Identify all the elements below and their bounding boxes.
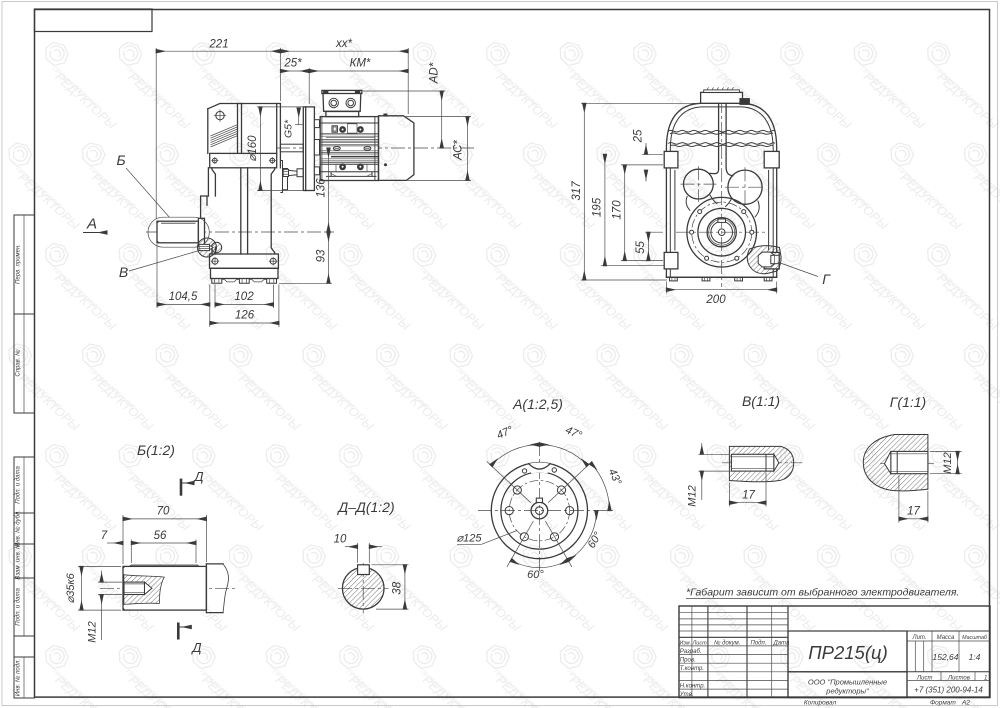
svg-text:Листов: Листов (947, 675, 970, 681)
svg-text:АС*: АС* (453, 140, 465, 161)
svg-text:Масштаб: Масштаб (962, 635, 988, 641)
svg-text:Инв. № дубл.: Инв. № дубл. (15, 510, 22, 547)
svg-text:А(1:2,5): А(1:2,5) (512, 396, 563, 412)
svg-text:Б(1:2): Б(1:2) (137, 442, 175, 458)
svg-text:Инв. № подл.: Инв. № подл. (15, 659, 22, 696)
svg-text:ПР215(ц): ПР215(ц) (808, 642, 888, 663)
svg-text:Изм.: Изм. (680, 640, 692, 646)
svg-text:Подп. и дата: Подп. и дата (16, 588, 22, 626)
svg-text:⌀160: ⌀160 (247, 135, 259, 162)
svg-text:56: 56 (154, 530, 167, 542)
svg-text:Лист: Лист (692, 640, 708, 646)
svg-text:Т.контр.: Т.контр. (680, 666, 704, 672)
svg-text:Формат: Формат (930, 700, 956, 707)
svg-text:317: 317 (571, 181, 583, 201)
svg-text:170: 170 (612, 200, 624, 220)
svg-text:25*: 25* (283, 58, 302, 70)
svg-text:⌀125: ⌀125 (457, 533, 483, 545)
svg-text:10: 10 (334, 534, 347, 546)
svg-text:G5*: G5* (283, 119, 295, 138)
svg-text:⌀35к6: ⌀35к6 (65, 572, 77, 603)
svg-text:М12: М12 (942, 452, 954, 473)
svg-text:7: 7 (101, 530, 108, 542)
svg-text:93: 93 (316, 249, 328, 262)
svg-text:Справ. №: Справ. № (15, 349, 22, 377)
svg-text:КМ*: КМ* (350, 58, 371, 70)
svg-text:М12: М12 (87, 621, 99, 642)
svg-text:Взам. инв. №: Взам. инв. № (15, 542, 22, 580)
svg-text:В(1:1): В(1:1) (742, 393, 780, 409)
svg-text:Б: Б (116, 152, 125, 168)
svg-text:102: 102 (234, 291, 254, 303)
svg-text:Утв.: Утв. (679, 692, 694, 698)
svg-text:38: 38 (392, 581, 404, 594)
svg-text:+7 (351) 200-94-14: +7 (351) 200-94-14 (914, 686, 983, 695)
svg-text:200: 200 (705, 294, 726, 306)
svg-text:17: 17 (907, 506, 920, 518)
svg-text:152,64: 152,64 (933, 652, 959, 662)
svg-text:Масса: Масса (937, 635, 955, 641)
svg-text:Г(1:1): Г(1:1) (890, 394, 926, 410)
svg-text:А: А (86, 216, 97, 233)
svg-text:126: 126 (235, 310, 255, 322)
svg-text:Пров.: Пров. (680, 657, 696, 663)
svg-text:Перв. примен.: Перв. примен. (16, 244, 22, 284)
svg-text:Копировал: Копировал (804, 700, 837, 707)
svg-text:Подп. и дата: Подп. и дата (16, 466, 22, 504)
svg-text:Лист: Лист (916, 675, 932, 681)
svg-text:25: 25 (633, 129, 645, 143)
svg-text:60°: 60° (527, 569, 544, 581)
svg-text:Н.контр.: Н.контр. (680, 683, 705, 689)
svg-text:Дата: Дата (773, 640, 790, 646)
svg-text:Подп.: Подп. (751, 640, 767, 646)
svg-text:136: 136 (316, 178, 328, 198)
svg-text:Д: Д (192, 469, 203, 484)
svg-text:А2: А2 (961, 700, 970, 707)
svg-text:221: 221 (208, 39, 228, 51)
svg-text:ООО "Промышленные: ООО "Промышленные (808, 678, 887, 687)
svg-text:AD*: AD* (429, 62, 441, 84)
svg-text:Разраб.: Разраб. (680, 649, 702, 655)
svg-text:104,5: 104,5 (169, 291, 198, 303)
svg-text:55: 55 (635, 241, 647, 254)
svg-text:17: 17 (742, 490, 755, 502)
svg-text:*Габарит зависит от выбранного: *Габарит зависит от выбранного электродв… (686, 587, 959, 599)
svg-text:70: 70 (157, 506, 170, 518)
svg-text:В: В (119, 264, 128, 280)
svg-text:xx*: xx* (335, 38, 353, 50)
svg-text:Лит.: Лит. (911, 635, 926, 641)
svg-text:1:4: 1:4 (969, 652, 981, 662)
svg-text:№ докум.: № докум. (714, 639, 740, 646)
svg-text:Д: Д (190, 640, 201, 655)
svg-text:М12: М12 (687, 485, 699, 506)
svg-text:Д–Д(1:2): Д–Д(1:2) (336, 499, 394, 515)
svg-text:1: 1 (984, 675, 987, 681)
svg-text:195: 195 (592, 197, 604, 217)
svg-text:редукторы": редукторы" (825, 687, 869, 696)
